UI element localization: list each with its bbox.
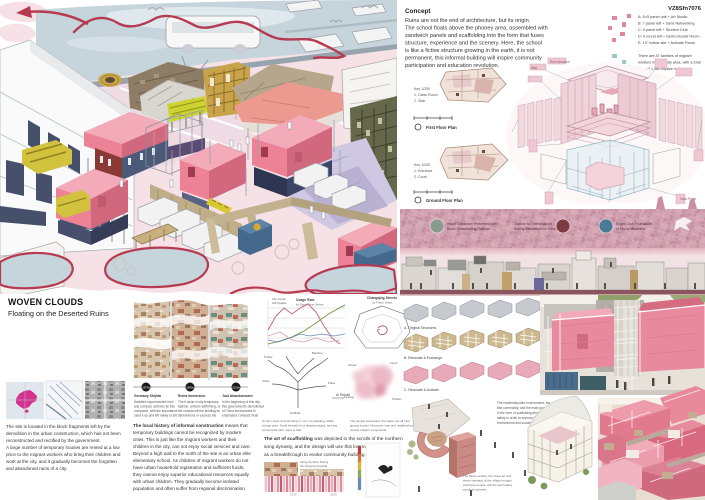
svg-text:The site is located in the blo: The site is located in the block fragmen… xyxy=(6,424,111,429)
svg-text:the crowds left the building i: the crowds left the building its xyxy=(178,409,220,413)
svg-text:Pavilion: Pavilion xyxy=(392,397,402,401)
svg-text:Weave: Weave xyxy=(348,363,357,367)
svg-text:WOVEN CLOUDS: WOVEN CLOUDS xyxy=(8,297,83,307)
svg-text:workers in the study area, wit: workers in the study area, with a total xyxy=(638,61,701,65)
svg-text:Audio Broadcasting Rostrum: Audio Broadcasting Rostrum xyxy=(447,227,490,231)
svg-text:1. Entrance: 1. Entrance xyxy=(414,169,432,173)
svg-text:2. Stair: 2. Stair xyxy=(414,99,426,103)
svg-text:D: 9 round left + Semi-circula: D: 9 round left + Semi-circular Room xyxy=(638,35,700,39)
svg-text:Changqing Streets: Changqing Streets xyxy=(367,296,397,300)
svg-text:2020: 2020 xyxy=(330,493,337,497)
svg-text:Floating: Floating xyxy=(344,395,354,399)
svg-text:A large number of temporary ho: A large number of temporary houses are r… xyxy=(6,445,120,450)
svg-text:C. Renovate & Activate: C. Renovate & Activate xyxy=(404,388,439,392)
svg-text:Bamboo: Bamboo xyxy=(312,351,323,355)
svg-text:1970: 1970 xyxy=(290,493,297,497)
svg-text:as a breakthrough to evoke com: as a breakthrough to evoke community bui… xyxy=(264,452,365,458)
svg-text:Germany Shijnfa: Germany Shijnfa xyxy=(134,394,161,398)
svg-text:population and often suffer fr: population and often suffer from regiona… xyxy=(133,486,246,491)
svg-text:and abandoned ruins of a city.: and abandoned ruins of a city. xyxy=(6,466,67,471)
svg-text:Usage Rate: Usage Rate xyxy=(296,298,315,302)
svg-text:street standard of the village: street standard of the village brought xyxy=(463,479,512,483)
svg-text:by Franz Yeats: by Franz Yeats xyxy=(372,301,392,305)
svg-text:safety in order to improve the: safety in order to improve the xyxy=(497,416,539,420)
svg-text:Chance for Talent had lot: Chance for Talent had lot xyxy=(514,222,552,226)
svg-text:compounds with, ways is that.: compounds with, ways is that. xyxy=(262,428,302,432)
svg-text:Roof structure: Roof structure xyxy=(550,60,570,64)
svg-text:structure, experience and the: structure, experience and the scenery. H… xyxy=(405,41,542,47)
svg-text:B: 7 panel left + Sand Network: B: 7 panel left + Sand Networking xyxy=(638,22,694,26)
svg-text:demolutions or express the: demolutions or express the xyxy=(178,414,216,418)
svg-text:Beyond a high wall to the nort: Beyond a high wall to the north of the s… xyxy=(133,451,251,456)
svg-text:craziness people, will list re: craziness people, will list real healthy xyxy=(463,483,513,487)
svg-text:There are 87 families of migra: There are 87 families of migrant xyxy=(638,54,693,58)
svg-text:A. Original Structures: A. Original Structures xyxy=(404,326,437,330)
svg-text:Joints: Joints xyxy=(262,379,270,383)
svg-text:Timber: Timber xyxy=(264,355,273,359)
svg-text:first community, and the main: first community, and the main people xyxy=(497,406,549,410)
svg-text:and complex archives lie this: and complex archives lie this xyxy=(134,405,175,409)
svg-text:First Floor Plan: First Floor Plan xyxy=(426,125,457,130)
svg-text:The local history of informal: The local history of informal constructi… xyxy=(133,423,248,428)
svg-text:this government's demolished: this government's demolished xyxy=(222,405,264,409)
svg-text:price to the migrant workers w: price to the migrant workers who bring t… xyxy=(6,452,121,457)
svg-text:used it up and left valley to: used it up and left valley to left xyxy=(134,414,177,418)
svg-text:the Qingming Festival: the Qingming Festival xyxy=(300,464,327,468)
svg-text:groups impact. Moreover, way a: groups impact. Moreover, way and neighbo… xyxy=(350,424,415,428)
svg-text:The it issue in city temporary: The it issue in city temporary xyxy=(178,400,219,404)
svg-text:Ground Floor Plan: Ground Floor Plan xyxy=(426,198,463,203)
svg-text:have urban household registrat: have urban household registration and su… xyxy=(133,465,245,470)
svg-text:1970s: 1970s xyxy=(142,386,150,390)
svg-text:E: 13' hollow site + Activate: E: 13' hollow site + Activate Room xyxy=(638,41,695,45)
svg-text:1990s: 1990s xyxy=(186,386,194,390)
svg-text:Concept: Concept xyxy=(405,8,431,15)
svg-text:is like a fictive structure gr: is like a fictive structure growing in t… xyxy=(405,48,535,54)
svg-text:C: 9 panel left + Student Club: C: 9 panel left + Student Club xyxy=(638,28,688,32)
svg-text:Ruins are not the end of archi: Ruins are not the end of architecture, b… xyxy=(405,18,531,24)
svg-text:with urban children. They grad: with urban children. They gradually beco… xyxy=(133,479,239,484)
svg-text:compared, with the importance: compared, with the importance xyxy=(134,409,178,413)
svg-text:cities. This is just like the: cities. This is just like the migrant wo… xyxy=(133,437,237,442)
svg-text:To form trees as branching in,: To form trees as branching in, up in as … xyxy=(262,419,334,423)
svg-text:work at the city, and it gradu: work at the city, and it gradually becom… xyxy=(6,459,117,464)
svg-text:Floating on the Deserted Ruins: Floating on the Deserted Ruins xyxy=(8,309,109,318)
svg-text:demolition in the urban constr: demolition in the urban construction, wh… xyxy=(6,431,121,436)
svg-text:Poles: Poles xyxy=(328,381,336,385)
svg-text:temporary buildings cannot be: temporary buildings cannot be recognized… xyxy=(133,430,242,435)
svg-text:Key 1/200: Key 1/200 xyxy=(414,163,430,167)
svg-text:2010s: 2010s xyxy=(232,386,240,390)
svg-text:elementary school. As children: elementary school. As children of migran… xyxy=(133,458,249,463)
svg-text:The art of scaffolding was dep: The art of scaffolding was depicted in t… xyxy=(264,436,403,442)
svg-text:Old Quarter: Old Quarter xyxy=(272,301,287,305)
svg-text:a large area. Small beautiful: a large area. Small beautiful is a disad… xyxy=(262,424,338,428)
svg-text:Just Abandonment: Just Abandonment xyxy=(222,394,253,398)
svg-text:of China environment to: of China environment to xyxy=(222,409,256,413)
svg-text:Huaqi Classroom Performed with: Huaqi Classroom Performed with xyxy=(447,222,497,226)
svg-text:fashion, arrived reaffirming,: fashion, arrived reaffirming, of xyxy=(178,405,220,409)
svg-text:children in the city, can not: children in the city, can not enjoy soci… xyxy=(133,444,251,449)
svg-text:Ruins Immersion: Ruins Immersion xyxy=(178,394,206,398)
svg-text:sands of activities.: sands of activities. xyxy=(463,488,488,492)
svg-text:The school floats above the ph: The school floats above the phoney area,… xyxy=(405,26,548,32)
svg-text:Scaffold: Scaffold xyxy=(290,411,300,415)
svg-text:A: 5×5 panel unit + Art Studio: A: 5×5 panel unit + Art Studio xyxy=(638,15,687,19)
svg-text:B. Renovate & Exchange: B. Renovate & Exchange xyxy=(404,356,442,360)
svg-text:permanent, this informal build: permanent, this informal building will i… xyxy=(405,56,542,62)
svg-text:VZ8Sfn7076: VZ8Sfn7076 xyxy=(668,6,702,12)
svg-text:Edged Club Foundation: Edged Club Foundation xyxy=(616,222,652,226)
svg-text:Key 1/200: Key 1/200 xyxy=(414,87,430,91)
svg-text:2. Court: 2. Court xyxy=(414,175,427,179)
svg-text:Wall: Wall xyxy=(531,66,537,70)
svg-text:sandwich panels and scaffoldin: sandwich panels and scaffolding into the… xyxy=(405,33,544,39)
svg-text:reconstructed and rectified by: reconstructed and rectified by the gover… xyxy=(6,438,101,443)
svg-text:Satisfied experimented in/of: Satisfied experimented in/of xyxy=(134,400,173,404)
svg-text:The residents/public environme: The residents/public environment, the xyxy=(497,401,550,405)
svg-text:The Music society, the street: The Music society, the street art and xyxy=(463,474,511,478)
svg-text:of Phony Museums: of Phony Museums xyxy=(616,227,645,231)
svg-text:they cannot enjoy superior edu: they cannot enjoy superior educational r… xyxy=(133,472,250,477)
svg-text:emphasize compact ritual: emphasize compact ritual xyxy=(222,414,258,418)
svg-text:society religion compounds.: society religion compounds. xyxy=(350,428,387,432)
svg-text:The people interweave the spac: The people interweave the space are all … xyxy=(350,419,410,423)
svg-text:In the beginning of this city,: In the beginning of this city, xyxy=(222,400,261,404)
svg-text:participation and education re: participation and education revolution. xyxy=(405,63,500,69)
svg-text:1. Class Room: 1. Class Room xyxy=(414,93,438,97)
svg-text:Cloud: Cloud xyxy=(390,361,398,365)
